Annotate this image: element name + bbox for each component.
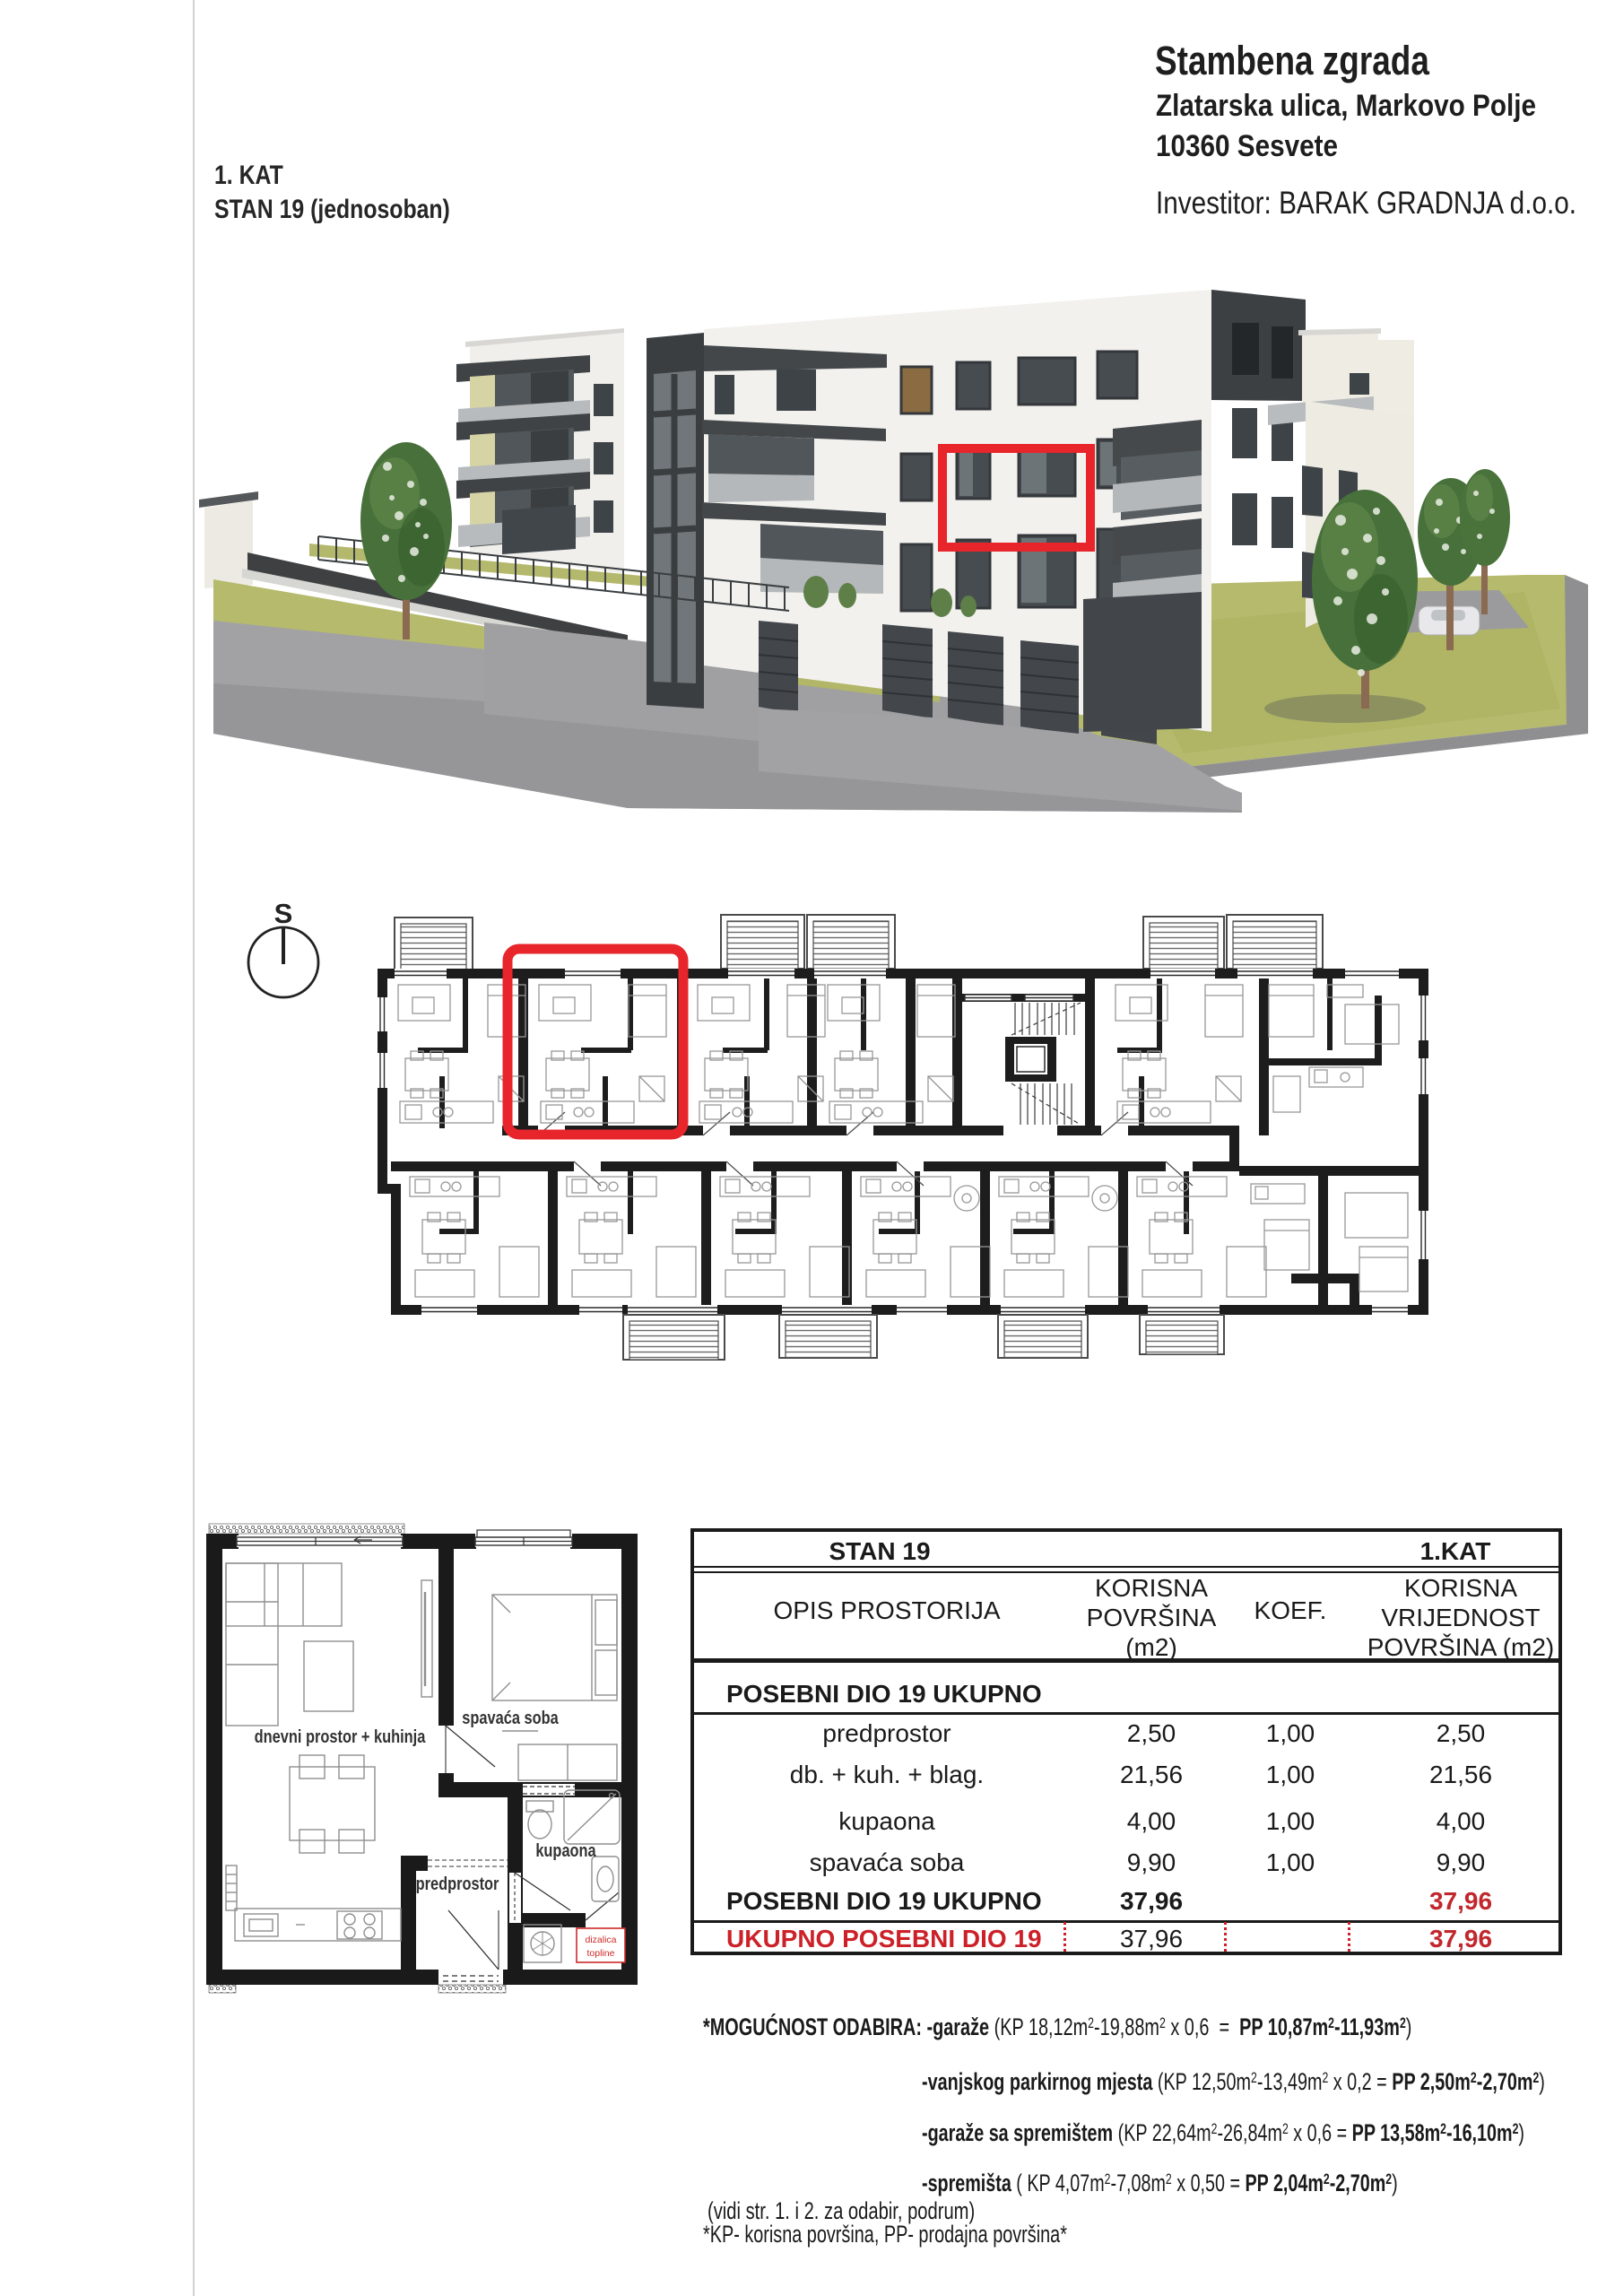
svg-text:dizalica: dizalica <box>585 1935 616 1945</box>
svg-text:S: S <box>274 898 293 929</box>
svg-text:spavaća soba: spavaća soba <box>462 1707 559 1727</box>
svg-text:predprostor: predprostor <box>416 1873 499 1893</box>
svg-text:dnevni prostor + kuhinja: dnevni prostor + kuhinja <box>255 1726 426 1746</box>
svg-text:kupaona: kupaona <box>535 1839 596 1860</box>
svg-text:topline: topline <box>587 1948 615 1959</box>
